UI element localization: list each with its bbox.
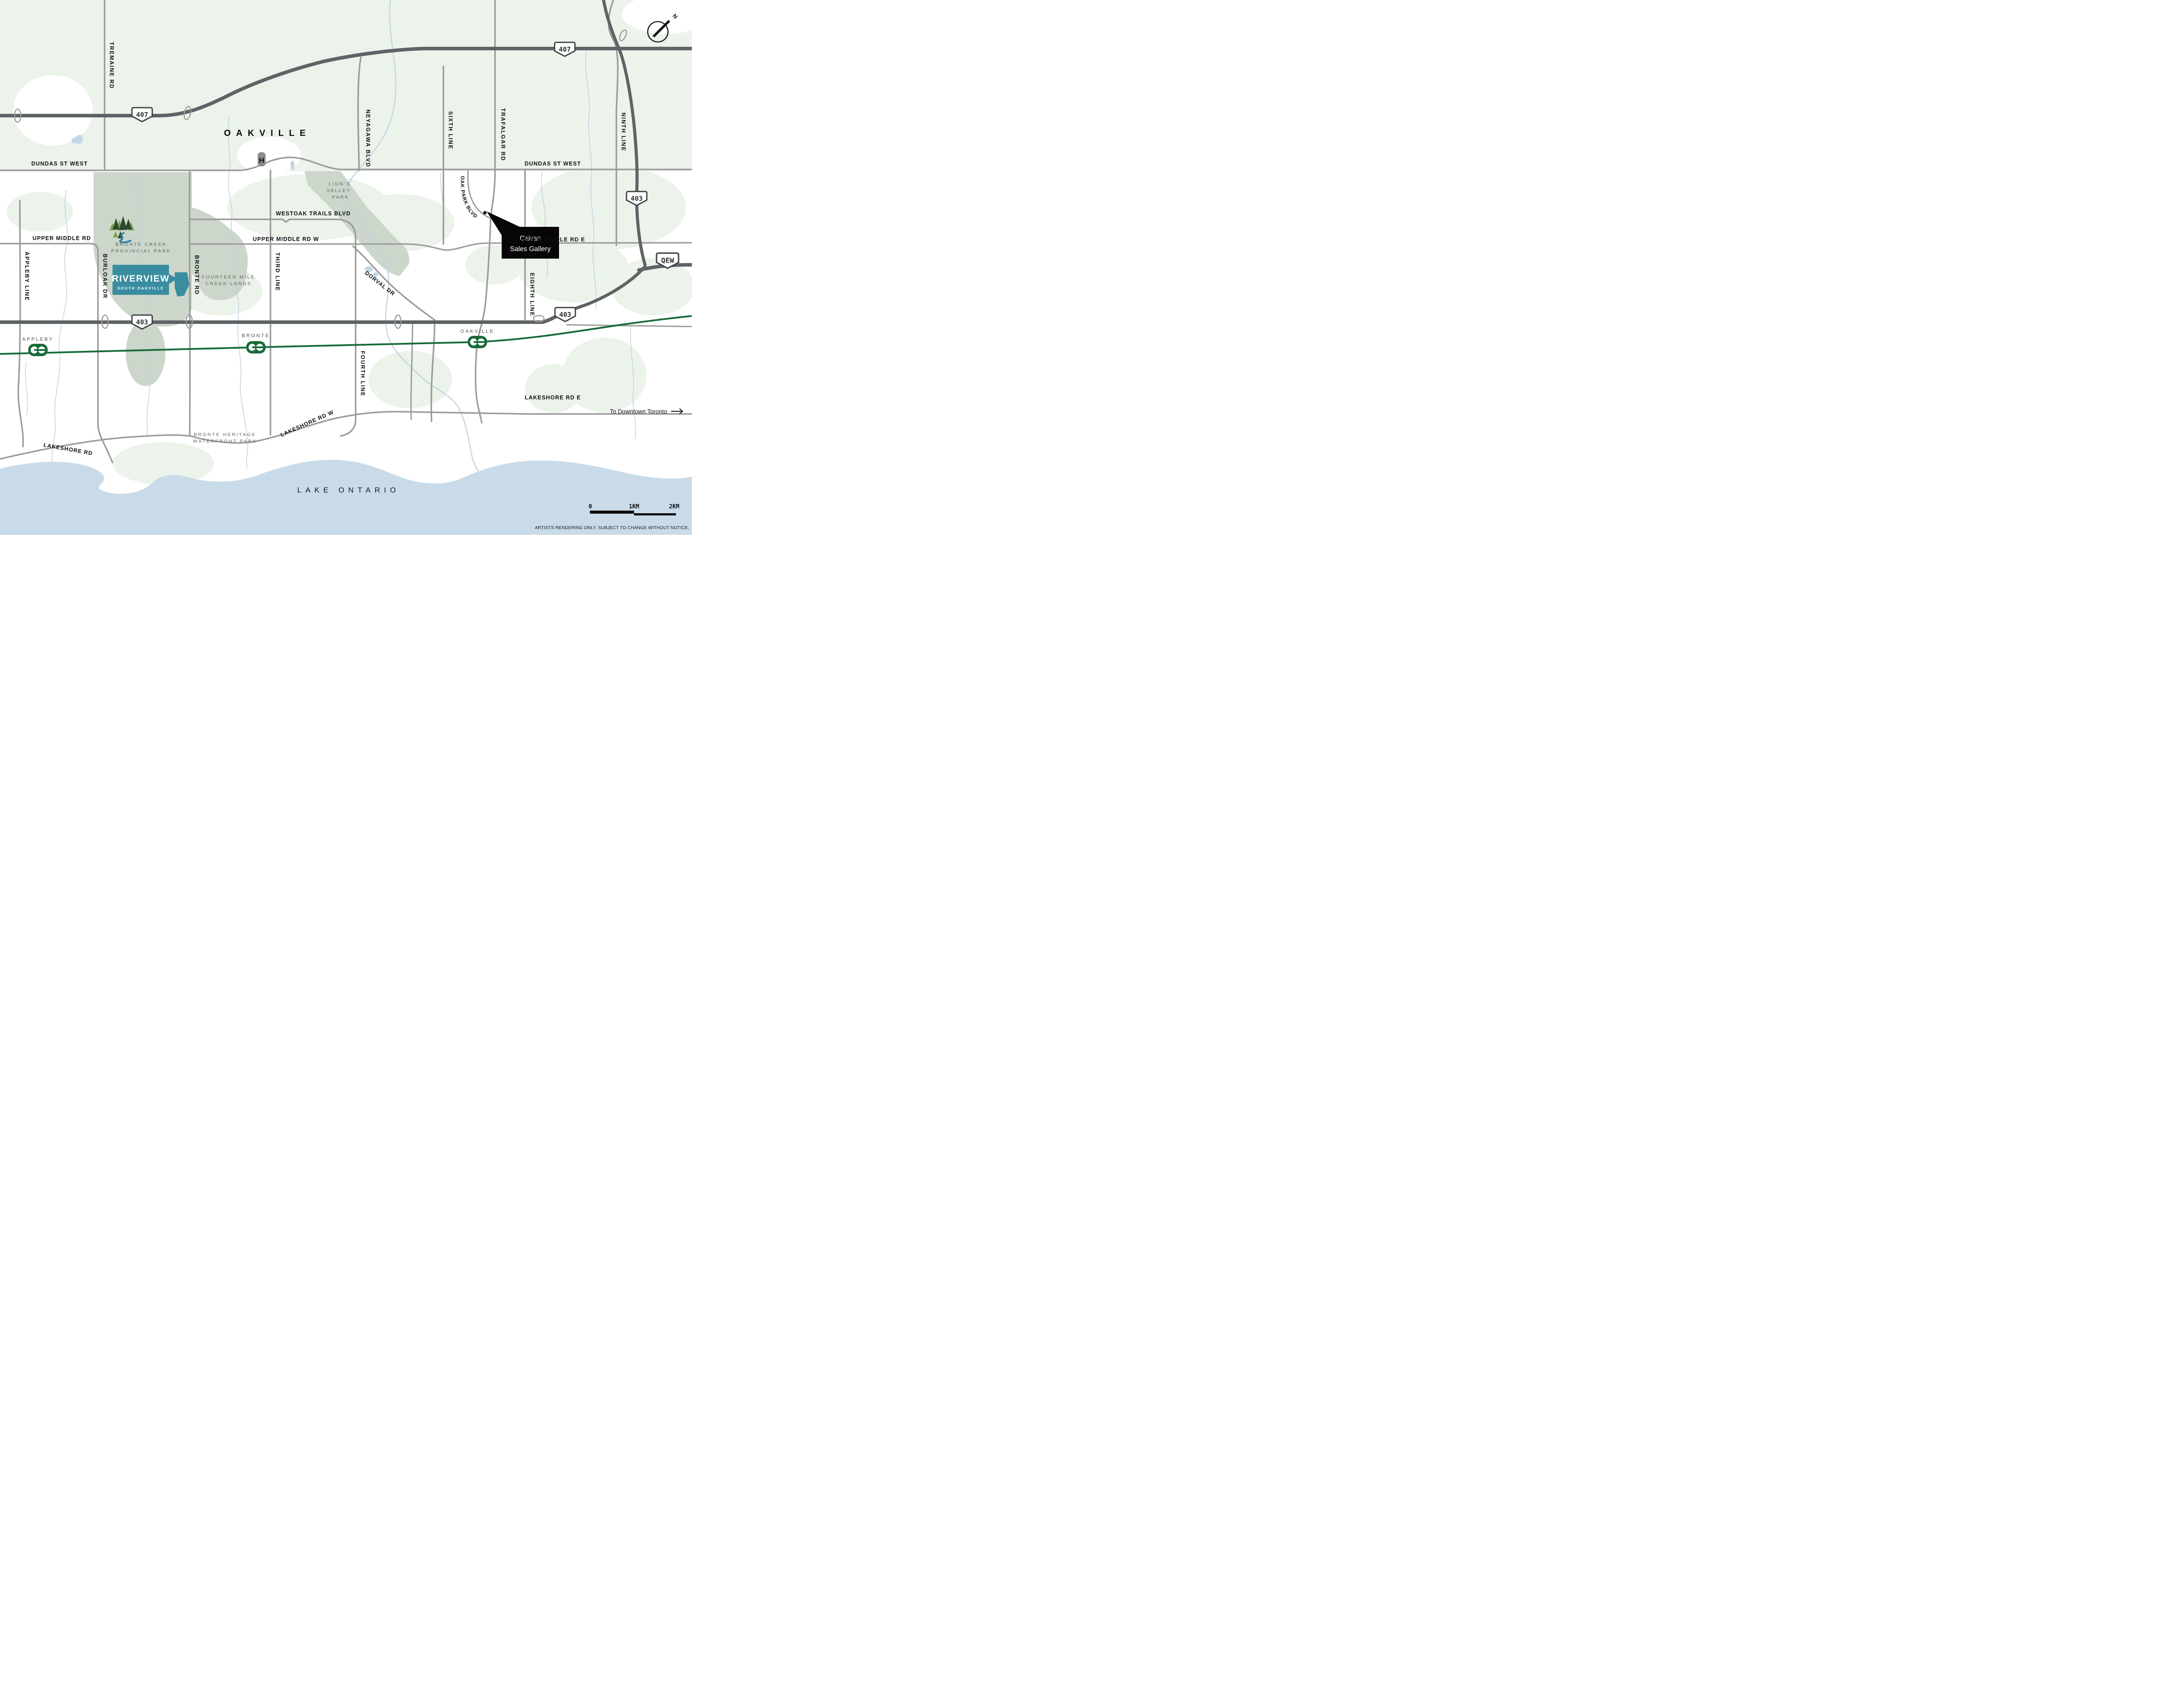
city-label-oakville: OAKVILLE (224, 128, 311, 138)
riverview-area-map: APPLEBY BRONTE OAKVILLE 407 407 403 403 … (0, 0, 692, 535)
go-logo-bronte (246, 341, 266, 353)
road-label-burloak: BURLOAK DR (102, 254, 108, 299)
gallery-line2: Sales Gallery (510, 245, 551, 253)
road-label-tremaine: TREMAINE RD (109, 42, 115, 89)
road-label-westoak: WESTOAK TRAILS BLVD (276, 211, 351, 217)
park-label-fourteen-1: FOURTEEN MILE (202, 274, 255, 280)
disclaimer-text: ARTISTS RENDERING ONLY. SUBJECT TO CHANG… (535, 526, 689, 530)
road-label-upper-middle-e: UPPER MIDDLE RD E (521, 237, 585, 243)
go-logo-appleby (28, 344, 48, 356)
road-label-ninth-line: NINTH LINE (620, 113, 627, 151)
park-label-heritage-2: WATERFRONT PARK (193, 439, 257, 444)
station-label-appleby: APPLEBY (22, 337, 53, 342)
hospital-letter: H (259, 156, 264, 165)
park-label-bronte-creek-1: BRONTE CREEK (116, 242, 167, 247)
scale-1km: 1KM (629, 504, 639, 510)
riverview-logo-name: RIVERVIEW (112, 274, 170, 284)
road-label-neyagawa: NEYAGAWA BLVD (365, 109, 371, 167)
scale-bar-segment-1 (590, 511, 634, 514)
gallery-callout-box (502, 227, 559, 259)
map-canvas: APPLEBY BRONTE OAKVILLE 407 407 403 403 … (0, 0, 692, 535)
road-label-bronte-rd: BRONTE RD (194, 255, 200, 295)
road-label-appleby-line: APPLEBY LINE (24, 252, 30, 301)
park-label-lions-2: VALLEY (326, 188, 351, 193)
road-label-eighth-line: EIGHTH LINE (529, 273, 535, 316)
road-label-fourth-line: FOURTH LINE (360, 351, 366, 397)
park-label-heritage-1: BRONTE HERITAGE (194, 432, 256, 437)
road-label-lakeshore-e: LAKESHORE RD E (525, 395, 581, 401)
hospital-icon: H (258, 152, 266, 166)
road-label-upper-middle-w: UPPER MIDDLE RD W (253, 236, 319, 242)
shield-403-west-label: 403 (136, 318, 148, 326)
road-label-upper-middle: UPPER MIDDLE RD (33, 235, 91, 241)
road-label-dundas-left: DUNDAS ST WEST (31, 161, 88, 167)
park-label-bronte-creek-2: PROVINCIAL PARK (111, 248, 171, 254)
road-label-sixth-line: SIXTH LINE (447, 111, 454, 150)
to-toronto-text: To Downtown Toronto (610, 408, 667, 415)
shield-403-mid-label: 403 (559, 311, 571, 319)
road-label-trafalgar: TRAFALGAR RD (500, 108, 506, 161)
lake-label: LAKE ONTARIO (297, 486, 400, 494)
scale-bar-segment-2 (634, 513, 676, 515)
shield-qew-label: QEW (661, 256, 674, 264)
road-label-third-line: THIRD LINE (274, 252, 281, 291)
shield-403-north-label: 403 (630, 195, 642, 203)
road-bronte-rd (189, 170, 190, 436)
road-label-dundas-right: DUNDAS ST WEST (525, 161, 581, 167)
station-label-oakville: OAKVILLE (460, 329, 494, 334)
scale-zero: 0 (589, 504, 592, 510)
park-label-lions-1: LION'S (329, 181, 351, 187)
go-logo-oakville (468, 336, 487, 348)
gallery-location-dot (483, 211, 487, 214)
park-label-fourteen-2: CREEK LANDS (206, 281, 252, 286)
park-label-lions-3: PARK (332, 195, 349, 200)
scale-2km: 2KM (669, 504, 679, 510)
shield-407-right-label: 407 (559, 45, 570, 53)
riverview-logo-sub: SOUTH OAKVILLE (117, 286, 164, 290)
station-label-bronte: BRONTE (242, 333, 270, 338)
shield-407-left-label: 407 (136, 111, 148, 119)
